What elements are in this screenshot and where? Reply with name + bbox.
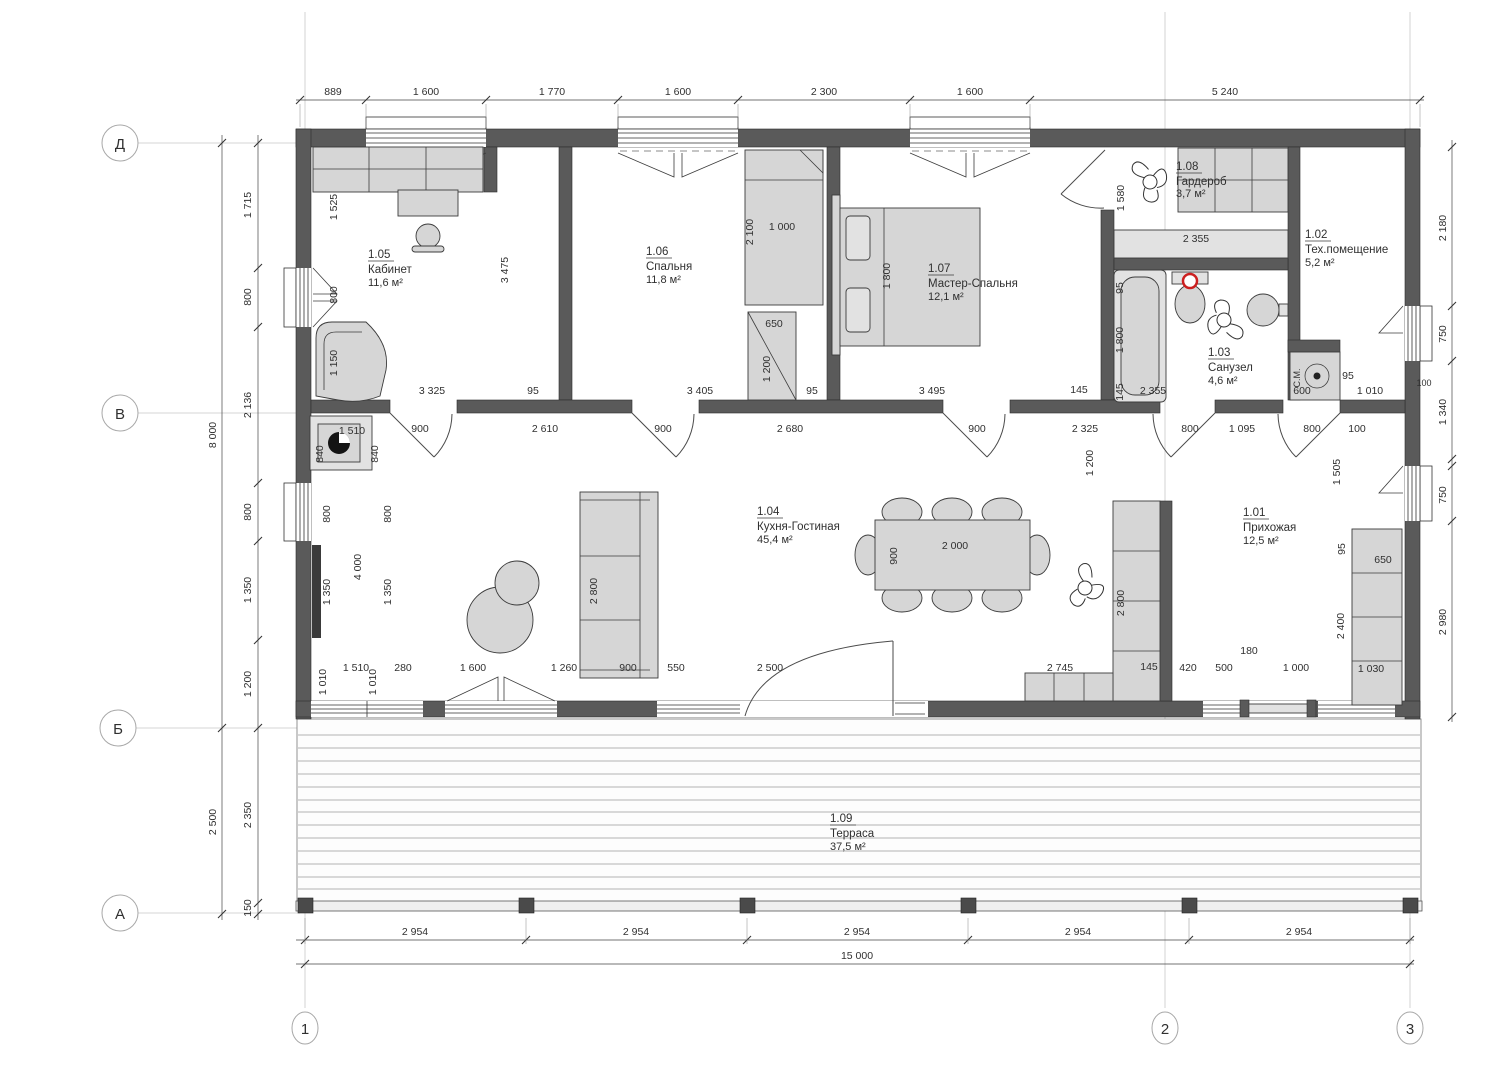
dim: 900 — [411, 423, 429, 435]
room-number: 1.07 — [928, 263, 950, 275]
dim: 180 — [1240, 645, 1258, 657]
dim: 2 954 — [623, 926, 649, 938]
floor-plan-drawing: 889 1 600 1 770 1 600 2 300 1 600 5 240 … — [0, 0, 1496, 1080]
dim: 2 300 — [811, 86, 837, 98]
dim: 95 — [1336, 543, 1348, 555]
dim: 1 600 — [665, 86, 691, 98]
room-area: 12,1 м² — [928, 291, 964, 303]
dim: 95 — [806, 385, 818, 397]
dim: 1 095 — [1229, 423, 1255, 435]
dim: 2 680 — [777, 423, 803, 435]
grid-col-label: 1 — [301, 1021, 309, 1038]
dim: 2 954 — [1065, 926, 1091, 938]
dim: 2 954 — [844, 926, 870, 938]
dim: 500 — [1215, 662, 1233, 674]
dim: 420 — [1179, 662, 1197, 674]
room-name: Гардероб — [1176, 176, 1227, 188]
tv-panel — [312, 545, 321, 638]
grid-row-label: Д — [115, 136, 125, 153]
room-label-101: 1.01 Прихожая 12,5 м² — [1243, 507, 1296, 547]
dimension-chain-right: 2 180 750 1 340 100 750 2 980 — [1416, 140, 1456, 722]
dim: 650 — [1374, 554, 1392, 566]
dim: 4 000 — [352, 554, 364, 580]
grid-col-label: 2 — [1161, 1021, 1169, 1038]
dimension-chain-top: 889 1 600 1 770 1 600 2 300 1 600 5 240 — [296, 86, 1424, 127]
dim: 1 525 — [328, 194, 340, 220]
dim: 800 — [1303, 423, 1321, 435]
dim: 100 — [1416, 378, 1431, 388]
dim: 2 000 — [942, 540, 968, 552]
room-label-105: 1.05 Кабинет 11,6 м² — [368, 249, 412, 289]
dim: 15 000 — [841, 950, 873, 962]
dim: 1 770 — [539, 86, 565, 98]
dim: 1 010 — [1357, 385, 1383, 397]
terrace-edge-beam — [296, 901, 1422, 911]
dim: 145 — [1070, 384, 1088, 396]
window-top-3 — [910, 117, 1030, 177]
room-label-104: 1.04 Кухня-Гостиная 45,4 м² — [757, 506, 840, 546]
dim: 3 405 — [687, 385, 713, 397]
dim: 1 505 — [1331, 459, 1343, 485]
window-right-1 — [1379, 306, 1432, 361]
dim: 2 180 — [1437, 215, 1449, 241]
washing-machine-label: С.М. — [1292, 369, 1302, 388]
dim: 1 030 — [1358, 663, 1384, 675]
dim: 840 — [314, 445, 326, 463]
dining-set — [855, 498, 1050, 612]
dim: 1 260 — [551, 662, 577, 674]
entrance-door — [1240, 700, 1316, 717]
room-area: 45,4 м² — [757, 534, 793, 546]
dim: 2 350 — [242, 802, 254, 828]
corner-armchair — [316, 322, 387, 401]
dim: 1 200 — [1084, 450, 1096, 476]
dim: 1 000 — [769, 221, 795, 233]
dim: 840 — [369, 445, 381, 463]
grid-row-label: А — [115, 906, 125, 923]
room-number: 1.01 — [1243, 507, 1265, 519]
window-right-2 — [1379, 466, 1432, 521]
terrace-deck — [296, 719, 1422, 913]
dim: 800 — [321, 505, 333, 523]
sink — [1247, 294, 1288, 326]
dimension-chain-bottom: 2 954 2 954 2 954 2 954 2 954 15 000 — [296, 918, 1414, 968]
dim: 1 010 — [367, 669, 379, 695]
dim: 95 — [527, 385, 539, 397]
room-name: Спальня — [646, 261, 692, 273]
room-area: 11,8 м² — [646, 274, 681, 286]
dim: 1 010 — [317, 669, 329, 695]
window-bottom-left — [311, 701, 423, 717]
dim: 145 — [1114, 383, 1126, 401]
room-name: Терраса — [830, 828, 875, 840]
floor-plan-page: 889 1 600 1 770 1 600 2 300 1 600 5 240 … — [0, 0, 1496, 1080]
dim: 1 350 — [382, 579, 394, 605]
dim: 1 600 — [460, 662, 486, 674]
terrace-door — [740, 641, 928, 717]
dim: 145 — [1140, 661, 1158, 673]
dim: 2 745 — [1047, 662, 1073, 674]
dim: 2 610 — [532, 423, 558, 435]
room-name: Прихожая — [1243, 522, 1296, 534]
window-top-2 — [618, 117, 738, 177]
dim: 1 800 — [881, 263, 893, 289]
dim: 2 400 — [1335, 613, 1347, 639]
room-area: 4,6 м² — [1208, 375, 1238, 387]
dim: 800 — [242, 503, 254, 521]
person-figure-wardrobe — [1129, 153, 1175, 205]
room-number: 1.06 — [646, 246, 668, 258]
dim: 2 100 — [744, 219, 756, 245]
room-number: 1.02 — [1305, 229, 1327, 241]
dim: 2 954 — [402, 926, 428, 938]
dim: 800 — [242, 288, 254, 306]
dim: 1 350 — [242, 577, 254, 603]
person-figure-kitchen — [1068, 562, 1108, 612]
dim: 5 240 — [1212, 86, 1238, 98]
dim: 3 325 — [419, 385, 445, 397]
dim: 3 495 — [919, 385, 945, 397]
room-name: Кухня-Гостиная — [757, 521, 840, 533]
wardrobe-cabinet-105 — [313, 147, 483, 192]
window-bottom-mid — [657, 701, 740, 717]
room-number: 1.04 — [757, 506, 780, 518]
dim: 95 — [1342, 370, 1354, 382]
room-area: 5,2 м² — [1305, 257, 1335, 269]
dim: 2 355 — [1140, 385, 1166, 397]
window-left-2 — [284, 483, 311, 541]
dim: 900 — [654, 423, 672, 435]
dim: 3 475 — [499, 257, 511, 283]
room-area: 11,6 м² — [368, 277, 403, 289]
person-figure-bathroom — [1198, 297, 1246, 350]
dim: 100 — [1348, 423, 1366, 435]
grid-row-label: В — [115, 406, 125, 423]
dim: 1 510 — [343, 662, 369, 674]
door-tech — [1278, 413, 1340, 457]
room-label-106: 1.06 Спальня 11,8 м² — [646, 246, 692, 286]
room-name: Кабинет — [368, 264, 412, 276]
dim: 750 — [1437, 486, 1449, 504]
dim: 1 200 — [242, 671, 254, 697]
dim: 2 500 — [757, 662, 783, 674]
dim: 1 580 — [1115, 185, 1127, 211]
dim: 1 350 — [321, 579, 333, 605]
dim: 550 — [667, 662, 685, 674]
dim: 2 355 — [1183, 233, 1209, 245]
dim: 2 325 — [1072, 423, 1098, 435]
dim: 1 510 — [339, 425, 365, 437]
room-name: Санузел — [1208, 362, 1253, 374]
dim: 8 000 — [207, 422, 219, 448]
dim: 1 715 — [242, 192, 254, 218]
dim: 1 600 — [957, 86, 983, 98]
red-marker — [1183, 274, 1197, 288]
room-area: 12,5 м² — [1243, 535, 1279, 547]
dim: 800 — [328, 286, 340, 304]
dim: 1 000 — [1283, 662, 1309, 674]
room-name: Тех.помещение — [1305, 244, 1388, 256]
room-area: 3,7 м² — [1176, 188, 1206, 200]
room-label-103: 1.03 Санузел 4,6 м² — [1208, 347, 1253, 387]
dim: 900 — [888, 547, 900, 565]
dim: 900 — [619, 662, 637, 674]
window-bottom-folding — [445, 677, 557, 717]
dim: 2 800 — [588, 578, 600, 604]
door-cabinet — [390, 413, 452, 457]
dim: 800 — [382, 505, 394, 523]
dim: 150 — [242, 899, 254, 917]
dim: 2 800 — [1115, 590, 1127, 616]
dim: 280 — [394, 662, 412, 674]
door-wardrobe — [1061, 150, 1105, 208]
room-number: 1.08 — [1176, 161, 1198, 173]
dim: 800 — [1181, 423, 1199, 435]
dim: 2 136 — [242, 392, 254, 418]
room-label-102: 1.02 Тех.помещение 5,2 м² — [1305, 229, 1388, 269]
dim: 2 500 — [207, 809, 219, 835]
dim: 1 600 — [413, 86, 439, 98]
dim: 1 200 — [761, 356, 773, 382]
dim: 750 — [1437, 325, 1449, 343]
grid-row-label: Б — [113, 721, 123, 738]
desk — [398, 190, 458, 252]
dim: 900 — [968, 423, 986, 435]
dim: 2 954 — [1286, 926, 1312, 938]
room-area: 37,5 м² — [830, 841, 866, 853]
dim: 1 340 — [1437, 399, 1449, 425]
room-number: 1.09 — [830, 813, 852, 825]
window-bottom-hall — [1203, 701, 1240, 717]
dim: 650 — [765, 318, 783, 330]
dim: 95 — [1114, 282, 1126, 294]
door-master — [943, 413, 1005, 457]
room-number: 1.05 — [368, 249, 390, 261]
door-bedroom — [632, 413, 694, 457]
pouf-small — [495, 561, 539, 605]
room-name: Мастер-Спальня — [928, 278, 1018, 290]
grid-col-label: 3 — [1406, 1021, 1414, 1038]
bed-107 — [832, 195, 980, 355]
room-number: 1.03 — [1208, 347, 1230, 359]
dimension-chain-left: 1 715 800 2 136 800 1 350 1 200 2 350 15… — [207, 135, 262, 920]
dim: 1 150 — [328, 350, 340, 376]
dim: 1 800 — [1114, 327, 1126, 353]
door-bathroom — [1153, 413, 1215, 457]
dim: 889 — [324, 86, 342, 98]
dim: 2 980 — [1437, 609, 1449, 635]
